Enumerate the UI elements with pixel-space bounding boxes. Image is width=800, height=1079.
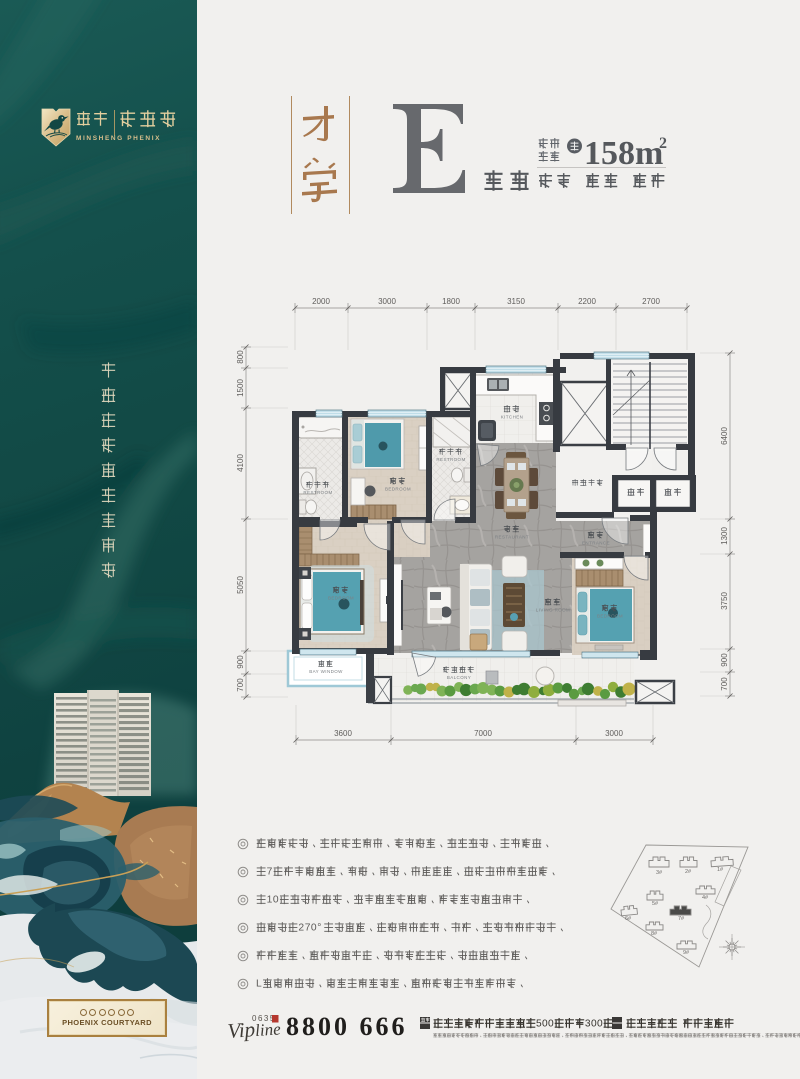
svg-text:4#: 4#: [702, 895, 709, 901]
svg-text:L: L: [256, 979, 262, 990]
svg-text:5#: 5#: [652, 901, 659, 907]
svg-text:7#: 7#: [678, 916, 685, 922]
svg-text:°: °: [317, 923, 321, 934]
svg-text:Vipline: Vipline: [227, 1015, 282, 1043]
svg-text:6#: 6#: [625, 916, 632, 922]
svg-text:0: 0: [273, 895, 279, 906]
svg-text:0: 0: [548, 1019, 554, 1030]
svg-text:2: 2: [298, 923, 304, 934]
svg-text:7: 7: [305, 923, 311, 934]
svg-text:7: 7: [267, 867, 273, 878]
svg-text:2#: 2#: [685, 869, 692, 875]
svg-text:3: 3: [585, 1019, 591, 1030]
svg-text:0: 0: [311, 923, 317, 934]
svg-text:3#: 3#: [656, 870, 663, 876]
svg-text:8#: 8#: [651, 931, 658, 937]
svg-text:9#: 9#: [683, 950, 690, 956]
svg-text:0: 0: [597, 1019, 603, 1030]
svg-text:1#: 1#: [717, 867, 724, 873]
svg-text:1: 1: [267, 895, 273, 906]
svg-text:8800 666: 8800 666: [286, 1012, 408, 1041]
